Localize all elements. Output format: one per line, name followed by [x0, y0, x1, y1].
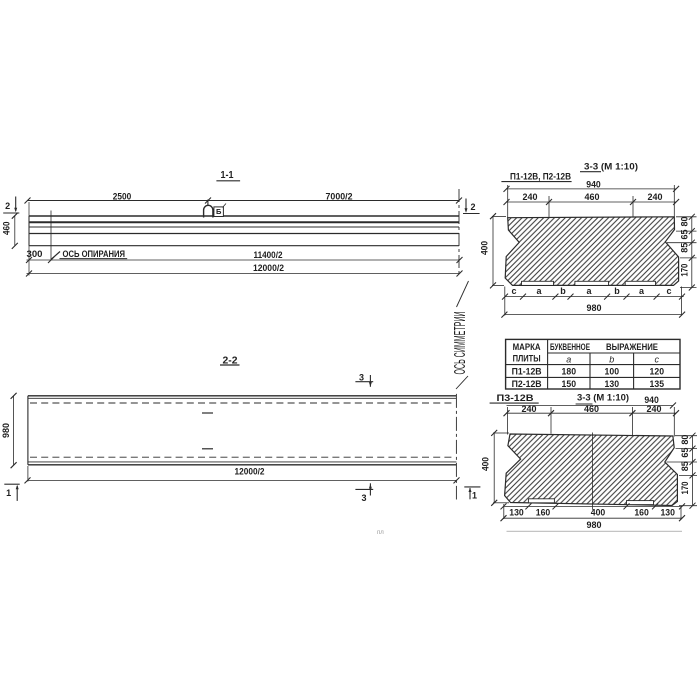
svg-text:3: 3 — [361, 493, 366, 503]
svg-text:3: 3 — [359, 373, 364, 383]
svg-text:7000/2: 7000/2 — [326, 191, 353, 201]
svg-text:180: 180 — [562, 367, 577, 377]
svg-text:12000/2: 12000/2 — [235, 466, 265, 476]
svg-text:130: 130 — [660, 508, 675, 518]
svg-text:160: 160 — [536, 508, 551, 518]
svg-text:400: 400 — [480, 241, 490, 255]
svg-text:400: 400 — [591, 508, 606, 518]
svg-text:3-3 (М 1:10): 3-3 (М 1:10) — [577, 393, 629, 404]
svg-text:400: 400 — [481, 457, 491, 471]
svg-text:130: 130 — [509, 508, 524, 518]
svg-text:b: b — [560, 286, 566, 296]
svg-text:65: 65 — [680, 448, 690, 458]
svg-text:240: 240 — [647, 404, 662, 414]
svg-text:12000/2: 12000/2 — [253, 263, 284, 273]
svg-text:80: 80 — [679, 217, 689, 227]
svg-text:c: c — [666, 286, 671, 296]
svg-text:85: 85 — [679, 243, 689, 253]
svg-text:П1-12В, П2-12В: П1-12В, П2-12В — [510, 171, 571, 182]
svg-text:ПЛИТЫ: ПЛИТЫ — [513, 354, 541, 364]
svg-text:a: a — [566, 354, 571, 364]
svg-text:80: 80 — [680, 435, 690, 445]
svg-text:3-3 (М 1:10): 3-3 (М 1:10) — [584, 162, 638, 173]
svg-text:2: 2 — [470, 202, 475, 212]
svg-text:b: b — [614, 286, 620, 296]
svg-text:170: 170 — [679, 264, 689, 277]
svg-text:100: 100 — [605, 367, 620, 377]
svg-text:150: 150 — [562, 379, 577, 389]
svg-text:БУКВЕННОЕ: БУКВЕННОЕ — [550, 342, 590, 352]
svg-text:460: 460 — [2, 222, 12, 236]
svg-text:980: 980 — [587, 303, 602, 313]
svg-text:2: 2 — [5, 201, 10, 211]
svg-text:c: c — [511, 286, 516, 296]
svg-text:МАРКА: МАРКА — [513, 342, 541, 352]
svg-text:460: 460 — [585, 192, 600, 202]
svg-text:135: 135 — [650, 379, 665, 389]
svg-text:ВЫРАЖЕНИЕ: ВЫРАЖЕНИЕ — [606, 342, 658, 352]
svg-text:170: 170 — [680, 482, 690, 495]
svg-text:П1-12В: П1-12В — [512, 367, 542, 377]
svg-text:300: 300 — [27, 249, 43, 259]
svg-text:65: 65 — [679, 230, 689, 240]
svg-text:Б: Б — [216, 207, 222, 216]
svg-text:240: 240 — [648, 192, 663, 202]
svg-text:980: 980 — [587, 520, 602, 530]
svg-text:240: 240 — [522, 404, 537, 414]
svg-text:2500: 2500 — [113, 191, 132, 201]
svg-text:П3-12В: П3-12В — [497, 393, 534, 404]
svg-text:980: 980 — [1, 423, 11, 438]
svg-text:П2-12В: П2-12В — [512, 379, 542, 389]
svg-text:ОСЬ ОПИРАНИЯ: ОСЬ ОПИРАНИЯ — [63, 249, 126, 259]
svg-text:460: 460 — [584, 404, 599, 414]
svg-text:1-1: 1-1 — [221, 169, 234, 181]
svg-text:b: b — [609, 354, 614, 364]
svg-text:160: 160 — [634, 508, 649, 518]
svg-text:85: 85 — [680, 461, 690, 471]
svg-text:1: 1 — [6, 488, 11, 498]
svg-text:240: 240 — [523, 192, 538, 202]
svg-text:ОСЬ СИММЕТРИИ: ОСЬ СИММЕТРИИ — [452, 312, 469, 375]
svg-text:1: 1 — [472, 491, 477, 501]
svg-text:пл: пл — [377, 530, 384, 536]
svg-text:940: 940 — [586, 180, 601, 190]
svg-text:11400/2: 11400/2 — [254, 250, 283, 260]
svg-text:c: c — [655, 354, 660, 364]
svg-text:130: 130 — [605, 379, 620, 389]
svg-text:120: 120 — [650, 367, 665, 377]
